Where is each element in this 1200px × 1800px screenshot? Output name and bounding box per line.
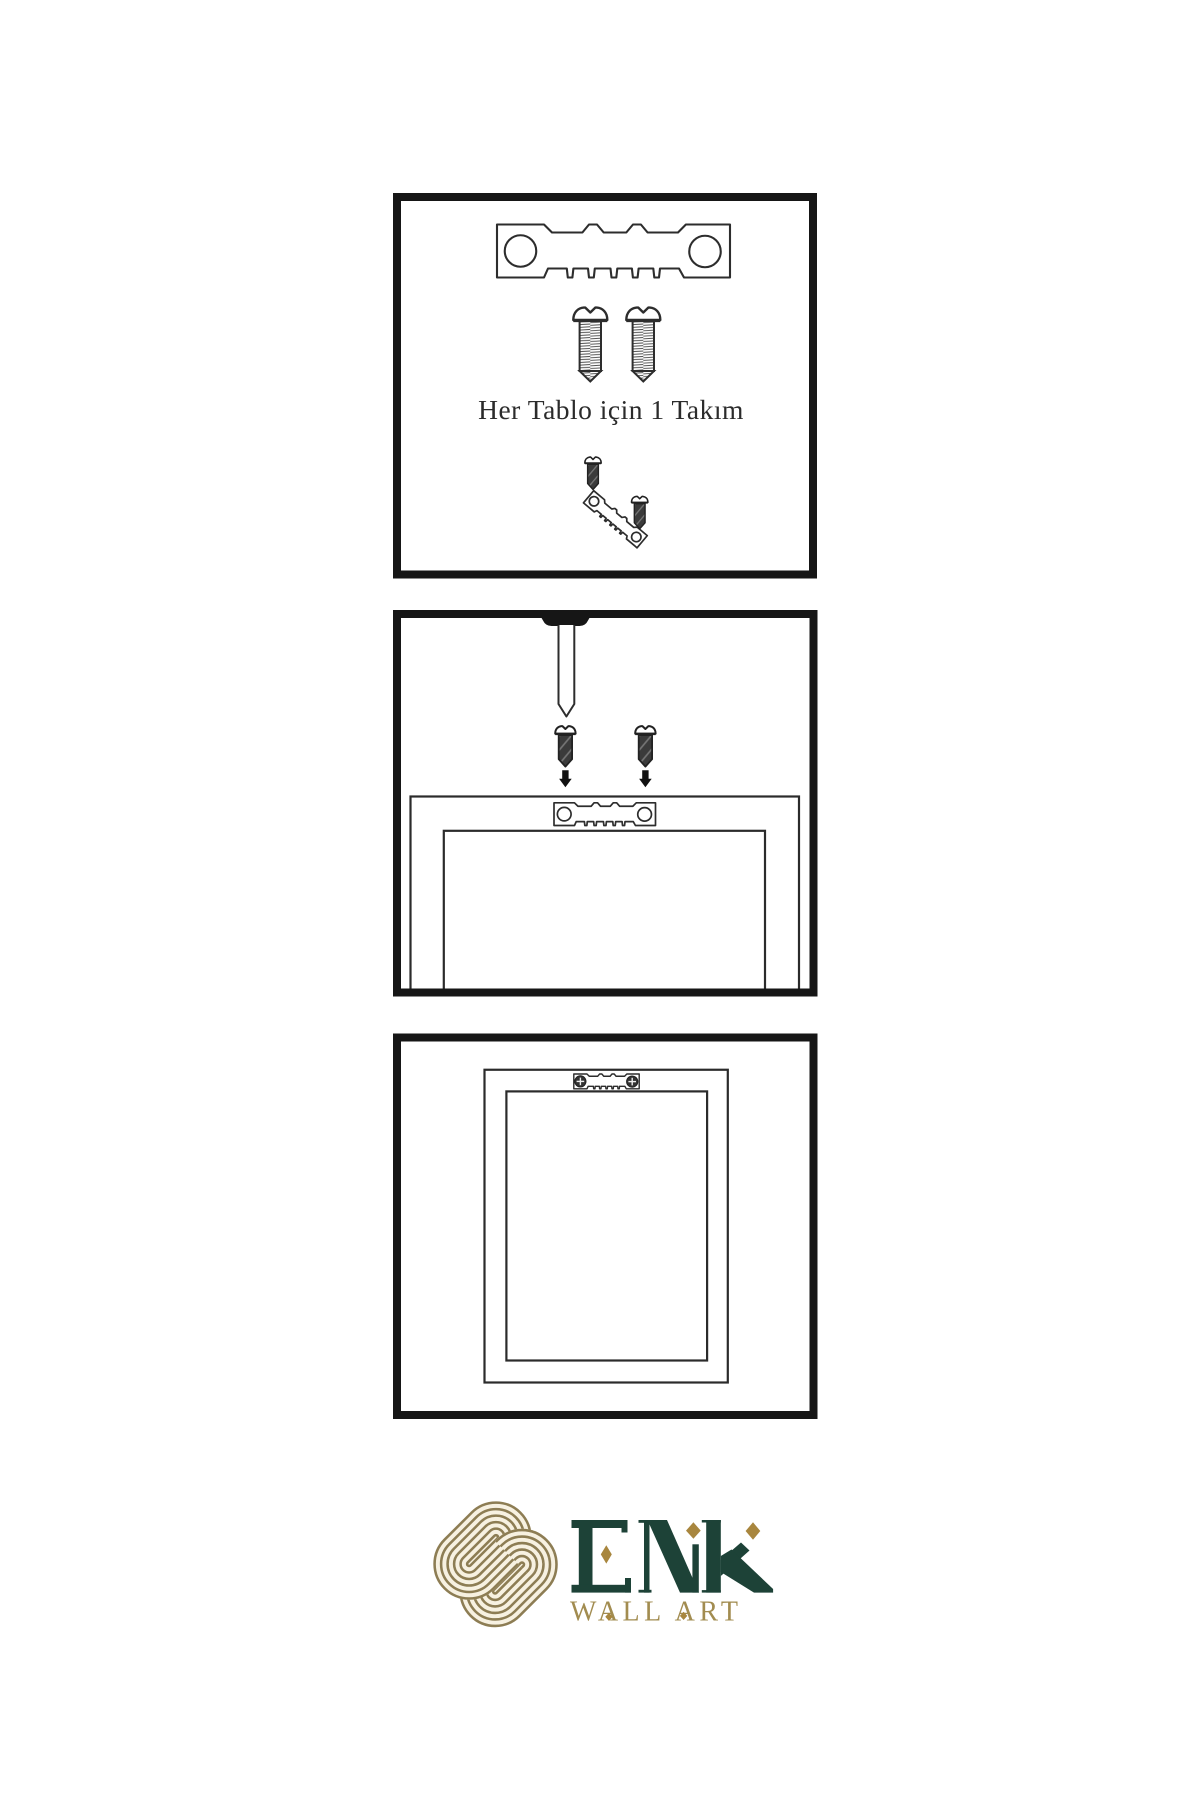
- svg-text:WALL ART: WALL ART: [570, 1597, 743, 1628]
- svg-text:Her Tablo için 1 Takım: Her Tablo için 1 Takım: [478, 394, 744, 425]
